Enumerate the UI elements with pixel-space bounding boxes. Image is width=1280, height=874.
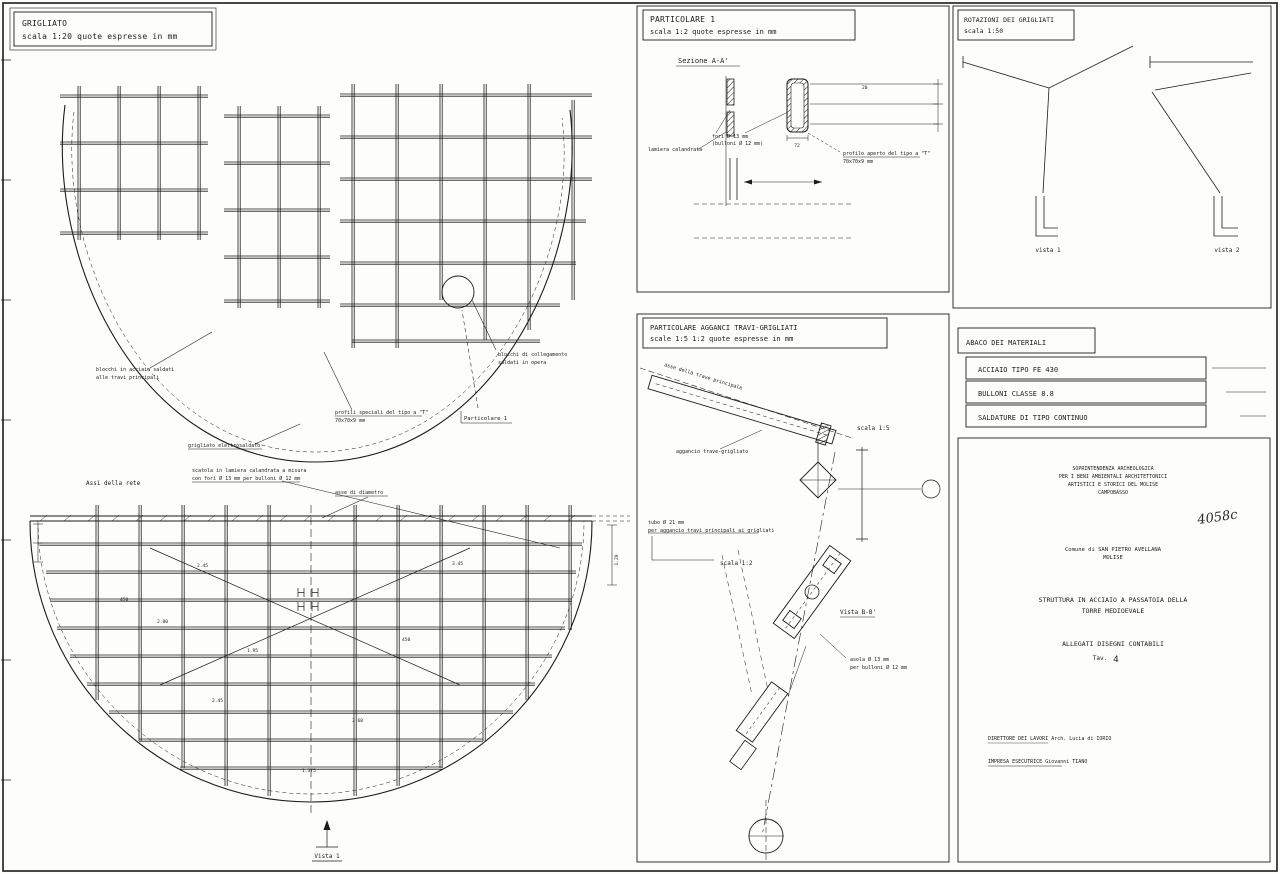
agganci-titlebox [643,318,887,348]
dim-3: 2.80 [157,619,168,625]
abaco-row-bulloni: BULLONI CLASSE 8.8 [978,390,1054,398]
particolare1-lower-detail [694,158,852,238]
tav-number: 4 [1113,655,1119,665]
label-fori-2: (bulloni Ø 12 mm) [712,140,763,147]
abaco-title: ABACO DEI MATERIALI [966,339,1046,347]
rotazioni-panel [953,6,1271,308]
vista1-view-label: vista 1 [1035,247,1061,254]
tav-label: Tav. [1093,655,1107,662]
grigliato-titlebox-outer [10,8,216,50]
tubo-label-bracket [652,536,714,560]
agganci-panel [637,314,949,862]
agganci-title: PARTICOLARE AGGANCI TRAVI-GRIGLIATI [650,324,798,332]
plan-top-detail-circle [442,276,474,308]
plan-top-grid-b [224,106,330,308]
label-lamiera: lamiera calandrata [648,147,702,153]
particolare1-dim-right: 20 [862,85,868,91]
handwritten-stamp: 4058c [1195,507,1239,528]
plan-top-outline-arc [62,105,572,462]
label-asse-trave: asse della trave principale [663,362,742,392]
direttore-line: DIRETTORE DEI LAVORI Arch. Lucia di IORI… [988,736,1111,742]
tube-profile-inner [791,83,804,128]
plan-bottom-dimension-lines [33,481,630,585]
dim-0: 2.45 [197,563,208,569]
label-collegamento-1: blocchi di collegamento [498,352,567,358]
grigliato-subtitle: scala 1:20 quote espresse in mm [22,32,178,41]
abaco-row-saldature: SALDATURE DI TIPO CONTINUO [978,414,1088,422]
label-aggancio: aggancio trave-grigliato [676,449,748,455]
dim-4: 1.95 [247,648,258,654]
panel-borders [10,6,1271,862]
dim-9: 1.20 [614,554,620,565]
vista-1-label: Vista 1 [314,853,340,860]
dim-6: 2.45 [212,698,223,704]
agency-line-1: SOPRINTENDENZA ARCHEOLOGICA [1072,466,1153,472]
comune-line-1: Comune di SAN PIETRO AVELLANA [1065,547,1162,553]
label-asola-1: asola Ø 13 mm [850,656,889,663]
agganci-drawing [640,368,940,860]
label-collegamento-2: saldati in opera [498,360,546,366]
label-particolare-1-callout: Particolare 1 [464,416,507,422]
vista-bb-label: Vista B-B' [840,609,876,616]
label-blocchi-2: alle travi principali [96,375,159,381]
grigliato-title: GRIGLIATO [22,19,67,28]
dim-1: 3.45 [452,561,463,567]
assembly-centerline [762,452,835,836]
label-profilo-2: 70x70x9 mm [843,159,873,165]
rotazioni-title: ROTAZIONI DEI GRIGLIATI [964,16,1054,24]
label-scatola-1: scatola in lamiera calandrata a misura [192,468,306,474]
vista1-bracket [1036,196,1058,236]
section-plate-upper [727,79,734,105]
vista2-bracket [1214,196,1238,236]
vista2-view-label: vista 2 [1214,247,1240,254]
label-profili-2: 70x70x9 mm [335,418,365,424]
impresa-line: IMPRESA ESECUTRICE Giovanni TIANO [988,759,1087,765]
agency-line-2: PER I BENI AMBIENTALI ARCHITETTONICI [1059,474,1167,480]
abaco-extension-lines [1212,368,1266,416]
comune-line-2: MOLISE [1103,555,1123,561]
plan-top-grid-a [60,86,208,240]
dim-7: 3.60 [352,718,363,724]
label-blocchi-1: blocchi in acciaio saldati [96,367,174,373]
dim-2: 450 [120,597,129,603]
agency-line-4: CAMPOBASSO [1098,490,1128,496]
label-grigliato-elettrosaldato: grigliato elettrosaldato [188,443,260,449]
plan-top-drawing [60,84,592,462]
label-asse-diametro: asse di diametro [335,490,383,496]
project-line-2: TORRE MEDIOEVALE [1082,607,1145,615]
agganci-subtitle: scale 1:5 1:2 quote espresse in mm [650,335,793,343]
plan-top-leaders [150,300,512,449]
label-assi-della-rete: Assi della rete [86,480,141,487]
lower-assembly [730,682,788,860]
label-tubo-2: per aggancio travi principali ai griglia… [648,528,774,534]
mid-assembly [773,546,875,696]
plan-bottom-center-connectors [298,588,318,611]
abaco-row-acciaio: ACCIAIO TIPO FE 430 [978,366,1058,374]
dim-8: 1.375 [302,768,316,774]
plan-bottom-drawing [30,481,630,861]
dim-5: 450 [402,637,411,643]
label-profilo-1: profilo aperto del tipo a "T" [843,151,930,157]
plan-top-grid-c [340,84,592,348]
rotazioni-subtitle: scala 1:50 [964,27,1003,35]
sezione-aa-label: Sezione A-A' [678,57,729,65]
titleblock-border [958,438,1270,862]
scala-1-2-label: scala 1:2 [720,560,753,567]
section-plate-lower [727,112,734,136]
particolare1-dim-under: 72 [794,143,800,149]
label-fori-1: fori Ø 13 mm [712,133,748,140]
label-profili-1: profili speciali del tipo a "T" [335,410,428,416]
label-asola-2: per bulloni Ø 12 mm [850,664,907,671]
label-scatola-2: con fori Ø 13 mm per bulloni Ø 12 mm [192,475,300,482]
agency-line-3: ARTISTICI E STORICI DEL MOLISE [1068,482,1158,488]
diagonal-beam [647,372,837,446]
project-line-1: STRUTTURA IN ACCIAIO A PASSATOIA DELLA [1039,596,1188,604]
rotazioni-titlebox [958,10,1074,40]
allegati-label: ALLEGATI DISEGNI CONTABILI [1062,640,1164,648]
label-tubo-1: tubo Ø 21 mm [648,519,684,526]
drawing-sheet: GRIGLIATO scala 1:20 quote espresse in m… [0,0,1280,874]
drawing-canvas: GRIGLIATO scala 1:20 quote espresse in m… [0,0,1280,874]
rotazioni-drawing [963,46,1253,236]
particolare1-title: PARTICOLARE 1 [650,15,715,24]
scala-1-5-label: scala 1:5 [857,425,890,432]
particolare1-subtitle: scala 1:2 quote espresse in mm [650,28,776,36]
